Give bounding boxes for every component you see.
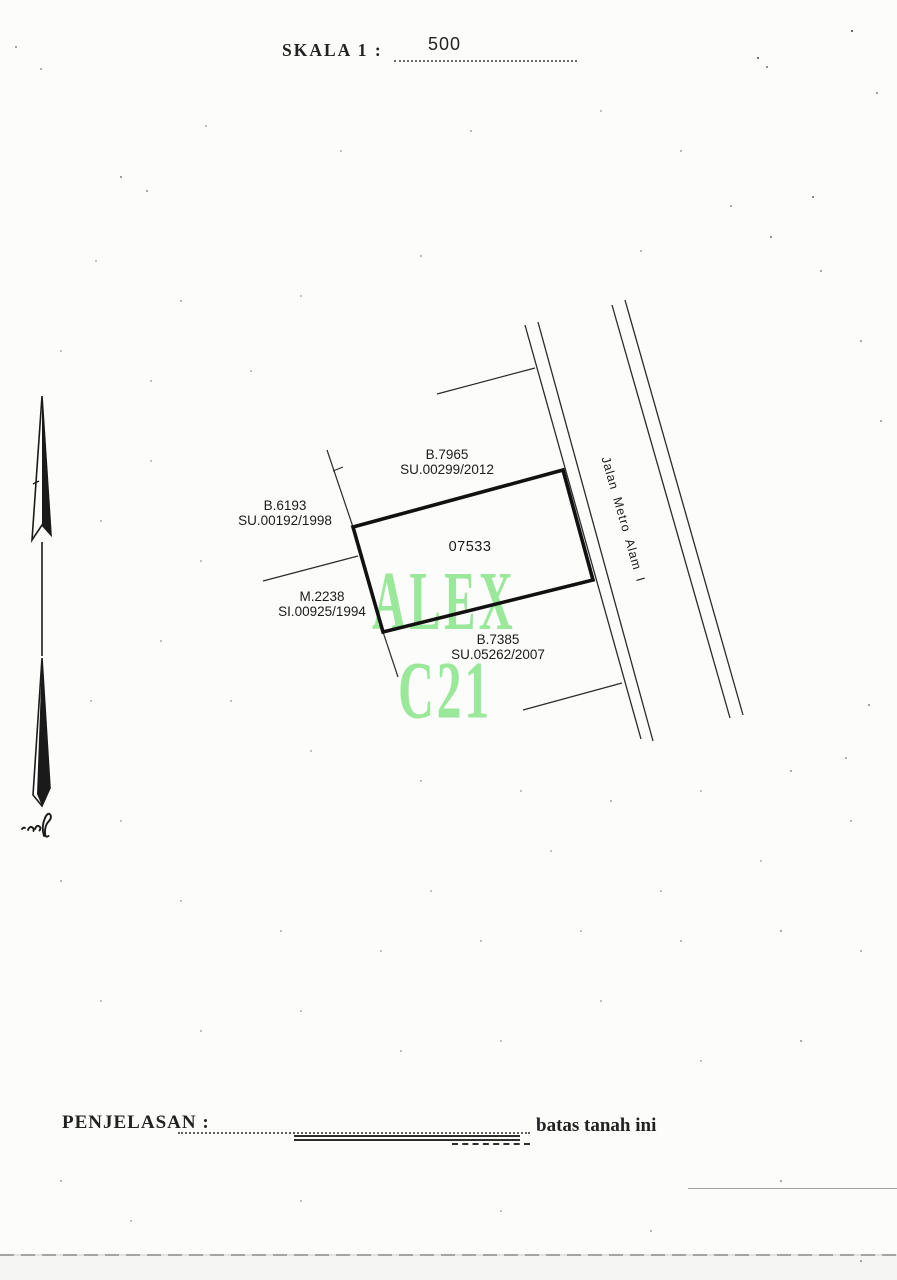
neighbor-doc: SU.05262/2007 [438,647,558,662]
neighbor-id: B.7965 [377,447,517,462]
boundary-tick [333,467,343,471]
neighbor-id: B.6193 [226,498,344,513]
legend-dotted-line [178,1123,530,1134]
handwritten-initials [22,814,51,837]
road-edge-line [625,300,743,715]
neighbor-doc: SU.00192/1998 [226,513,344,528]
road-lines [525,300,743,741]
neighbor-doc: SI.00925/1994 [263,604,381,619]
scanned-survey-document: SKALA 1 : 500 ALEX C21 [0,0,897,1280]
neighbor-id: M.2238 [263,589,381,604]
boundary-line [263,556,358,581]
neighbor-doc: SU.00299/2012 [377,462,517,477]
legend-dashed-symbol [452,1139,530,1145]
legend-description: batas tanah ini [536,1115,656,1137]
neighbor-label-m2238: M.2238 SI.00925/1994 [263,589,381,619]
neighbor-label-b7385: B.7385 SU.05262/2007 [438,632,558,662]
boundary-line [437,368,535,394]
parcel-number-label: 07533 [437,540,503,555]
boundary-line [523,683,622,710]
north-arrow-icon [16,392,68,854]
road-edge-line [538,322,653,741]
boundary-line [383,632,398,677]
neighbor-id: B.7385 [438,632,558,647]
neighbor-label-b6193: B.6193 SU.00192/1998 [226,498,344,528]
neighbor-label-b7965: B.7965 SU.00299/2012 [377,447,517,477]
